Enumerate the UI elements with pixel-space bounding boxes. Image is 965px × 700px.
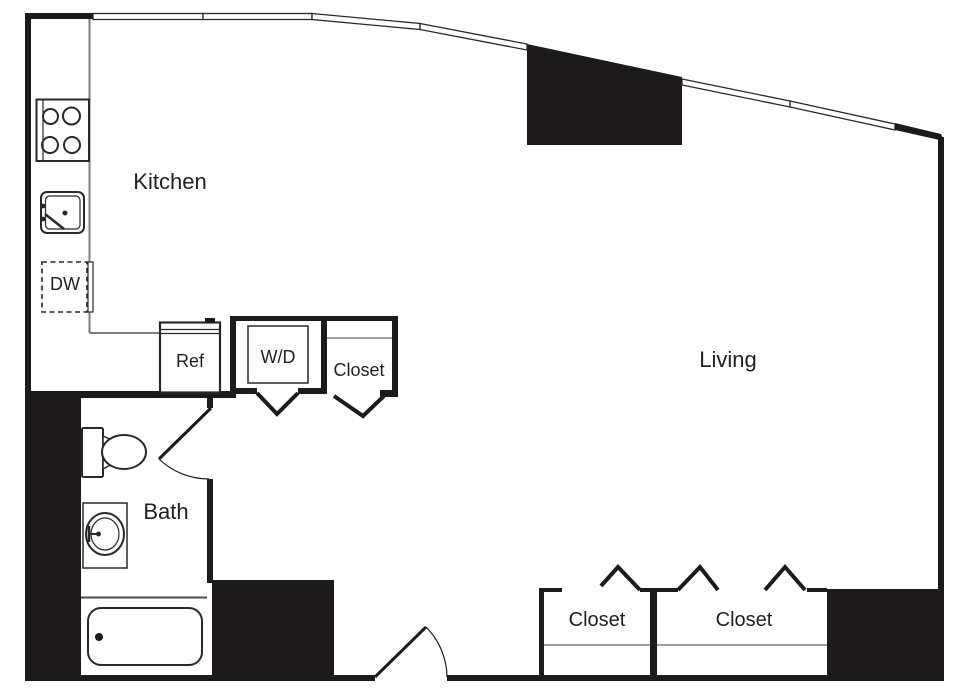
stove-icon — [37, 100, 90, 162]
refrigerator-handle-icon — [205, 318, 215, 323]
wall-right-sloped-top — [895, 123, 944, 141]
refrigerator-label: Ref — [176, 351, 205, 371]
enclosure-right-wall — [392, 316, 398, 397]
upper-closet-label: Closet — [333, 360, 384, 380]
dishwasher-box: DW — [42, 262, 93, 312]
floor-plan-canvas: DW Ref Kitchen W/D Closet — [0, 0, 965, 700]
dishwasher-label: DW — [50, 274, 80, 294]
bifold-door-icon — [334, 396, 384, 416]
toilet-icon — [82, 428, 146, 477]
bifold-door-icon — [601, 567, 640, 590]
kitchen-label: Kitchen — [133, 169, 206, 194]
bath-area: Bath — [81, 408, 211, 665]
wall-closet-divider — [650, 588, 657, 678]
wall-block-southeast — [827, 589, 944, 678]
enclosure-divider-wall — [321, 321, 327, 392]
wall-closet-mid-top — [640, 588, 678, 592]
window-segment-icon — [420, 24, 527, 51]
vanity-sink-icon — [83, 503, 127, 568]
bath-label: Bath — [143, 499, 188, 524]
enclosure-bottom-stub-left — [230, 388, 257, 394]
refrigerator-box: Ref — [160, 318, 220, 393]
wall-bath-right — [207, 479, 213, 583]
kitchen-area: DW Ref Kitchen — [37, 19, 221, 393]
washer-dryer-label: W/D — [261, 347, 296, 367]
wall-bottom-left — [25, 675, 375, 681]
window-segment-icon — [312, 14, 420, 30]
kitchen-sink-icon — [41, 192, 84, 233]
bottom-closets: Closet Closet — [544, 567, 827, 645]
wall-block-southwest — [212, 580, 334, 681]
lower-left-closet-label: Closet — [569, 609, 626, 631]
wall-top-stub — [25, 13, 93, 19]
window-segment-icon — [203, 14, 312, 20]
floor-plan: DW Ref Kitchen W/D Closet — [0, 0, 965, 700]
enclosure-left-wall — [230, 316, 236, 395]
laundry-closet-enclosure: W/D Closet — [230, 316, 398, 416]
lower-right-closet-label: Closet — [716, 609, 773, 631]
enclosure-top-wall — [230, 316, 398, 321]
wall-right — [938, 137, 944, 678]
wall-closet1-left — [539, 588, 544, 678]
bifold-door-icon — [257, 393, 298, 414]
wall-column-top — [527, 44, 682, 145]
window-segment-icon — [790, 101, 895, 130]
window-segment-icon — [93, 14, 203, 20]
enclosure-bottom-stub-mid — [298, 388, 327, 394]
wall-bath-left-block — [25, 392, 81, 681]
bifold-door-icon — [678, 567, 718, 590]
entry-door-icon — [375, 627, 447, 677]
living-label: Living — [699, 347, 756, 372]
wall-closet2-top-stub — [807, 588, 827, 592]
wall-closet1-top-stub — [539, 588, 562, 592]
bathtub-icon — [88, 608, 202, 665]
bifold-door-icon — [765, 567, 805, 590]
wall-left — [25, 13, 31, 397]
bath-door-icon — [159, 408, 211, 479]
windows — [93, 14, 895, 131]
window-segment-icon — [682, 79, 790, 107]
